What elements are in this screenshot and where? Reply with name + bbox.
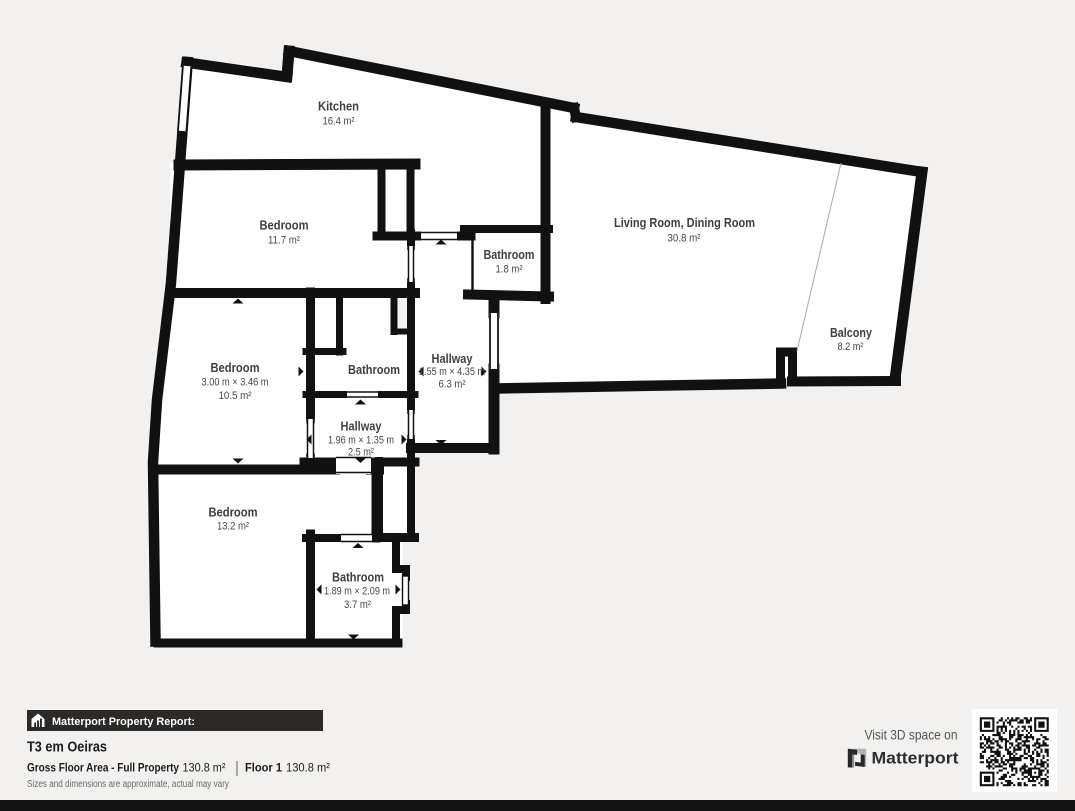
svg-text:1.96 m × 1.35 m: 1.96 m × 1.35 m xyxy=(328,435,394,447)
svg-text:Kitchen: Kitchen xyxy=(318,100,359,114)
svg-text:10.5 m²: 10.5 m² xyxy=(219,390,252,402)
svg-text:Bathroom: Bathroom xyxy=(484,248,535,262)
svg-text:3.7 m²: 3.7 m² xyxy=(344,599,371,611)
svg-text:2.5 m²: 2.5 m² xyxy=(348,447,374,459)
svg-text:Bathroom: Bathroom xyxy=(348,363,400,377)
svg-text:Bedroom: Bedroom xyxy=(260,219,309,233)
svg-text:30.8 m²: 30.8 m² xyxy=(668,233,701,245)
svg-text:Matterport: Matterport xyxy=(872,750,960,768)
svg-text:Bedroom: Bedroom xyxy=(211,361,260,375)
svg-text:Sizes and dimensions are appro: Sizes and dimensions are approximate, ac… xyxy=(27,779,229,790)
svg-text:Bathroom: Bathroom xyxy=(332,571,384,585)
svg-text:6.3 m²: 6.3 m² xyxy=(439,379,466,391)
svg-text:Balcony: Balcony xyxy=(830,326,872,340)
svg-text:Gross Floor Area - Full Proper: Gross Floor Area - Full Property130.8 m² xyxy=(27,761,226,775)
svg-text:13.2 m²: 13.2 m² xyxy=(217,521,249,533)
svg-text:16.4 m²: 16.4 m² xyxy=(323,116,355,128)
svg-text:1.55 m × 4.35 m: 1.55 m × 4.35 m xyxy=(419,366,485,378)
svg-text:3.00 m × 3.46 m: 3.00 m × 3.46 m xyxy=(202,377,269,389)
svg-text:Visit 3D space on: Visit 3D space on xyxy=(865,728,958,743)
svg-text:1.8 m²: 1.8 m² xyxy=(496,264,523,276)
svg-text:Floor 1130.8 m²: Floor 1130.8 m² xyxy=(245,761,330,775)
svg-text:Living Room, Dining Room: Living Room, Dining Room xyxy=(614,216,755,230)
svg-text:Hallway: Hallway xyxy=(432,352,473,366)
svg-text:1.89 m × 2.09 m: 1.89 m × 2.09 m xyxy=(324,586,390,598)
svg-text:8.2 m²: 8.2 m² xyxy=(838,341,864,353)
svg-text:T3 em Oeiras: T3 em Oeiras xyxy=(27,739,107,756)
svg-text:Hallway: Hallway xyxy=(341,420,382,434)
svg-text:Matterport Property Report:: Matterport Property Report: xyxy=(52,716,195,728)
svg-text:Bedroom: Bedroom xyxy=(209,506,258,520)
svg-text:11.7 m²: 11.7 m² xyxy=(268,235,300,247)
